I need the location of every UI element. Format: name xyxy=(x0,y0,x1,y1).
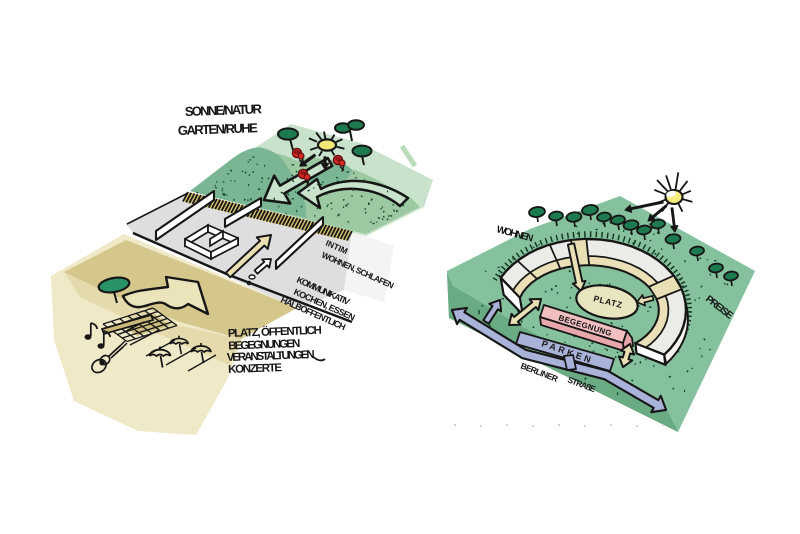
svg-text:KONZERTE: KONZERTE xyxy=(228,362,283,376)
svg-text:SONNE/NATUR: SONNE/NATUR xyxy=(185,101,263,119)
svg-text:GARTEN/RUHE: GARTEN/RUHE xyxy=(178,120,259,138)
